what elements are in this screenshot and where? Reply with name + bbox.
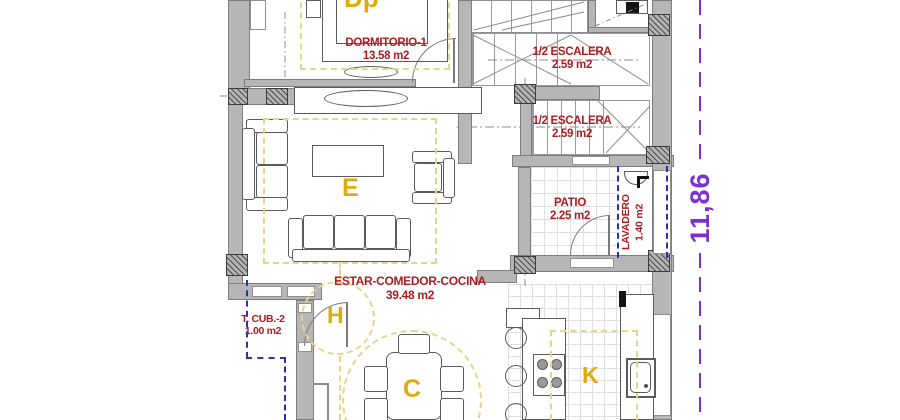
- label-patio: PATIO 2.25 m2: [528, 197, 612, 224]
- room-name: 1/2 ESCALERA: [512, 115, 632, 128]
- burner-icon: [537, 377, 548, 388]
- label-terraza-cubierta: T. CUB.-2 1.00 m2: [231, 313, 295, 337]
- armchair-back: [443, 158, 455, 198]
- label-escalera-superior: 1/2 ESCALERA 2.59 m2: [512, 46, 632, 73]
- room-area: 1.00 m2: [231, 325, 295, 337]
- zone-boundary-link: [339, 356, 341, 420]
- floor-plan: DORMITORIO-1 13.58 m2 1/2 ESCALERA 2.59 …: [0, 0, 900, 420]
- room-area: 2.59 m2: [512, 59, 632, 72]
- partition-stub: [327, 385, 329, 420]
- room-area: 13.58 m2: [306, 50, 466, 63]
- room-name: 1/2 ESCALERA: [512, 46, 632, 59]
- wall-bedroom: [244, 79, 416, 87]
- column: [514, 84, 536, 104]
- wardrobe-icon: [470, 0, 588, 33]
- column: [228, 88, 248, 105]
- decor-oval: [324, 90, 408, 107]
- counter-corner-mark: [619, 291, 626, 307]
- appliance-detail: [626, 2, 639, 13]
- lavadero-boundary: [617, 166, 619, 258]
- room-name: T. CUB.-2: [231, 313, 295, 325]
- room-name: LAVADERO: [620, 186, 634, 258]
- letter-hall: H: [327, 304, 344, 327]
- wall: [588, 27, 654, 33]
- label-escalera-inferior: 1/2 ESCALERA 2.59 m2: [512, 115, 632, 142]
- column: [266, 88, 288, 105]
- letter-estar: E: [342, 176, 359, 201]
- label-lavadero: LAVADERO 1.40 m2: [620, 186, 647, 258]
- wall-stairs: [458, 0, 472, 164]
- lavadero-boundary: [666, 166, 668, 258]
- door-sill: [572, 156, 610, 165]
- terrace-boundary: [284, 357, 286, 420]
- label-dormitorio: DORMITORIO-1 13.58 m2: [306, 37, 466, 64]
- stool-icon: [505, 365, 527, 387]
- letter-cocina: K: [582, 364, 599, 387]
- sofa-back: [242, 128, 255, 200]
- column: [226, 254, 248, 276]
- letter-dormitorio: Dp: [344, 0, 379, 11]
- room-name: ESTAR-COMEDOR-COCINA: [330, 275, 490, 289]
- room-name: DORMITORIO-1: [306, 37, 466, 50]
- room-area: 39.48 m2: [330, 289, 490, 303]
- burner-icon: [537, 359, 548, 370]
- stool-icon: [505, 403, 527, 420]
- label-estar-comedor-cocina: ESTAR-COMEDOR-COCINA 39.48 m2: [330, 275, 490, 303]
- letter-comedor: C: [403, 377, 421, 402]
- window: [250, 0, 266, 30]
- window-lavadero: [653, 170, 671, 254]
- column: [514, 256, 536, 274]
- sink-drain: [644, 384, 648, 388]
- wall: [228, 0, 250, 90]
- stool-icon: [505, 327, 527, 349]
- column: [648, 14, 670, 36]
- room-area: 1.40 m2: [634, 186, 648, 258]
- room-area: 2.25 m2: [528, 210, 612, 223]
- dimension-label: 11,86: [690, 163, 710, 253]
- window: [252, 286, 282, 297]
- room-name: PATIO: [528, 197, 612, 210]
- window: [570, 258, 614, 268]
- room-area: 2.59 m2: [512, 128, 632, 141]
- column: [646, 146, 670, 164]
- terrace-boundary: [246, 357, 286, 359]
